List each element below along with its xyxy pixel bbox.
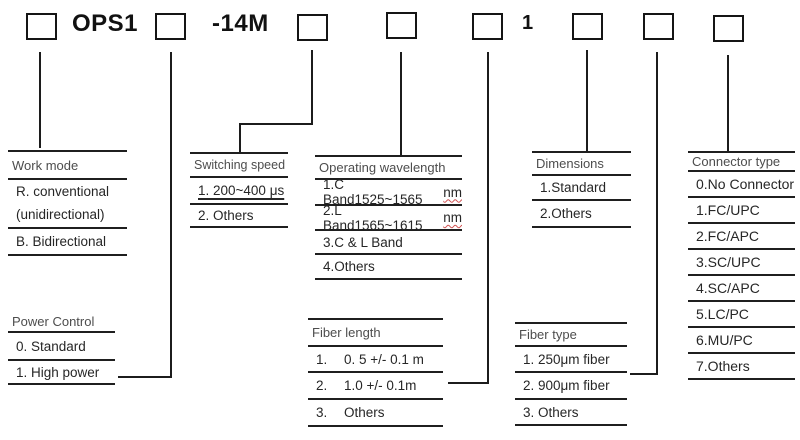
line-fiber-type-vertical	[656, 52, 658, 375]
work-mode-option-line1: R. conventional	[16, 181, 109, 203]
fiber-length-option-1-value: 0. 5 +/- 0.1 m	[344, 352, 424, 367]
line-work-mode	[39, 52, 41, 148]
switching-speed-option-2: 2. Others	[190, 205, 288, 228]
code-box-dimensions	[572, 13, 603, 40]
fiber-length-option-3-num: 3.	[316, 405, 344, 420]
dimensions-option-others: 2.Others	[532, 201, 631, 228]
switching-speed-table: Switching speed 1. 200~400 μs 2. Others	[190, 152, 288, 228]
code-box-fiber-length	[472, 13, 503, 40]
code-box-connector-type	[713, 15, 744, 42]
line-fiber-type-elbow	[630, 373, 658, 375]
fiber-length-option-3-value: Others	[344, 405, 385, 420]
work-mode-option-bidirectional: B. Bidirectional	[8, 229, 127, 256]
line-power-control-vertical	[170, 52, 172, 378]
code-box-operating-wavelength	[386, 12, 417, 39]
dimensions-option-standard: 1.Standard	[532, 176, 631, 201]
line-fiber-length-elbow	[448, 382, 489, 384]
operating-wavelength-option-1-unit: nm	[443, 185, 462, 200]
line-switching-speed-jog	[239, 123, 313, 125]
code-box-power-control	[155, 13, 186, 40]
fiber-length-option-1-num: 1.	[316, 352, 344, 367]
line-switching-speed-lower	[239, 123, 241, 152]
operating-wavelength-table: Operating wavelength 1.C Band1525~1565 n…	[315, 155, 462, 280]
fiber-length-option-2-value: 1.0 +/- 0.1m	[344, 378, 416, 393]
work-mode-option-conventional: R. conventional (unidirectional)	[8, 180, 127, 229]
code-model-label: -14M	[212, 10, 269, 38]
fiber-length-title: Fiber length	[308, 320, 443, 347]
connector-type-option-5: 5.LC/PC	[688, 302, 795, 328]
power-control-title: Power Control	[8, 312, 115, 333]
connector-type-option-7: 7.Others	[688, 354, 795, 380]
operating-wavelength-option-c-and-l: 3.C & L Band	[315, 231, 462, 255]
switching-speed-option-1: 1. 200~400 μs	[190, 178, 288, 205]
fiber-length-option-2: 2. 1.0 +/- 0.1m	[308, 373, 443, 400]
part-number-diagram: OPS1 -14M 1 Work mode R. conventional (u…	[0, 0, 800, 440]
power-control-table: Power Control 0. Standard 1. High power	[8, 312, 115, 385]
fiber-length-option-3: 3. Others	[308, 400, 443, 427]
code-box-work-mode	[26, 13, 57, 40]
code-fixed-digit: 1	[522, 12, 533, 35]
fiber-length-option-2-num: 2.	[316, 378, 344, 393]
work-mode-option-line2: (unidirectional)	[16, 204, 105, 226]
connector-type-table: Connector type 0.No Connector 1.FC/UPC 2…	[688, 151, 795, 380]
fiber-type-table: Fiber type 1. 250μm fiber 2. 900μm fiber…	[515, 322, 627, 426]
operating-wavelength-option-l-band: 2.L Band1565~1615 nm	[315, 206, 462, 231]
operating-wavelength-option-2-unit: nm	[443, 210, 462, 225]
fiber-length-table: Fiber length 1. 0. 5 +/- 0.1 m 2. 1.0 +/…	[308, 318, 443, 427]
operating-wavelength-option-others: 4.Others	[315, 255, 462, 280]
switching-speed-title: Switching speed	[190, 154, 288, 178]
fiber-type-option-250um: 1. 250μm fiber	[515, 347, 627, 373]
work-mode-title: Work mode	[8, 152, 127, 180]
line-operating-wavelength	[400, 52, 402, 155]
fiber-type-title: Fiber type	[515, 324, 627, 347]
power-control-option-high-power: 1. High power	[8, 361, 115, 385]
line-power-control-elbow	[118, 376, 172, 378]
code-box-switching-speed	[297, 14, 328, 41]
switching-speed-option-1-text: 1. 200~400 μs	[198, 183, 284, 198]
line-fiber-length-vertical	[487, 52, 489, 384]
connector-type-option-4: 4.SC/APC	[688, 276, 795, 302]
code-box-fiber-type	[643, 13, 674, 40]
connector-type-option-2: 2.FC/APC	[688, 224, 795, 250]
fiber-type-option-900um: 2. 900μm fiber	[515, 373, 627, 400]
dimensions-title: Dimensions	[532, 153, 631, 176]
line-connector-type	[727, 55, 729, 151]
dimensions-table: Dimensions 1.Standard 2.Others	[532, 151, 631, 228]
connector-type-option-1: 1.FC/UPC	[688, 198, 795, 224]
connector-type-option-3: 3.SC/UPC	[688, 250, 795, 276]
line-switching-speed-upper	[311, 50, 313, 125]
connector-type-option-0: 0.No Connector	[688, 172, 795, 198]
work-mode-table: Work mode R. conventional (unidirectiona…	[8, 150, 127, 256]
connector-type-title: Connector type	[688, 153, 795, 172]
operating-wavelength-option-2-text: 2.L Band1565~1615	[323, 203, 439, 233]
fiber-length-option-1: 1. 0. 5 +/- 0.1 m	[308, 347, 443, 373]
connector-type-option-6: 6.MU/PC	[688, 328, 795, 354]
power-control-option-standard: 0. Standard	[8, 333, 115, 361]
fiber-type-option-others: 3. Others	[515, 400, 627, 426]
line-dimensions	[586, 50, 588, 151]
code-prefix-label: OPS1	[72, 10, 138, 38]
